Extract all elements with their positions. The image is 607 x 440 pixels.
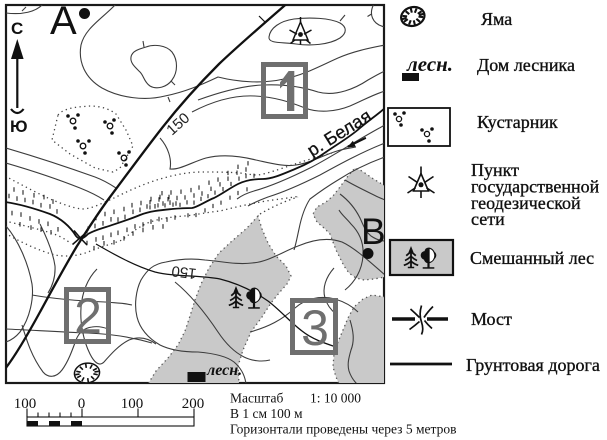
svg-text:Грунтовая дорога: Грунтовая дорога [466, 355, 600, 375]
svg-text:100: 100 [121, 396, 144, 412]
svg-text:2: 2 [74, 288, 102, 344]
svg-text:Кустарник: Кустарник [477, 112, 558, 132]
svg-text:В: В [361, 211, 386, 252]
svg-text:лесн.: лесн. [406, 52, 453, 76]
svg-text:Мост: Мост [471, 309, 512, 329]
svg-text:200: 200 [182, 396, 205, 412]
svg-text:Горизонтали проведены через 5: Горизонтали проведены через 5 метров [230, 422, 456, 437]
svg-text:Смешанный лес: Смешанный лес [470, 248, 594, 268]
svg-text:А: А [50, 0, 77, 43]
svg-text:лесн.: лесн. [206, 362, 242, 379]
svg-text:0: 0 [78, 396, 86, 412]
svg-text:Масштаб: Масштаб [230, 391, 283, 406]
svg-text:Яма: Яма [481, 9, 512, 29]
svg-text:В 1 см 100 м: В 1 см 100 м [230, 406, 303, 421]
svg-text:100: 100 [14, 396, 37, 412]
svg-text:С: С [11, 19, 23, 38]
svg-text:1: 10 000: 1: 10 000 [310, 391, 361, 406]
svg-text:Дом лесника: Дом лесника [477, 55, 575, 75]
svg-text:Ю: Ю [10, 117, 28, 136]
svg-text:3: 3 [301, 300, 329, 356]
svg-text:150: 150 [171, 262, 198, 282]
svg-text:сети: сети [471, 209, 505, 229]
